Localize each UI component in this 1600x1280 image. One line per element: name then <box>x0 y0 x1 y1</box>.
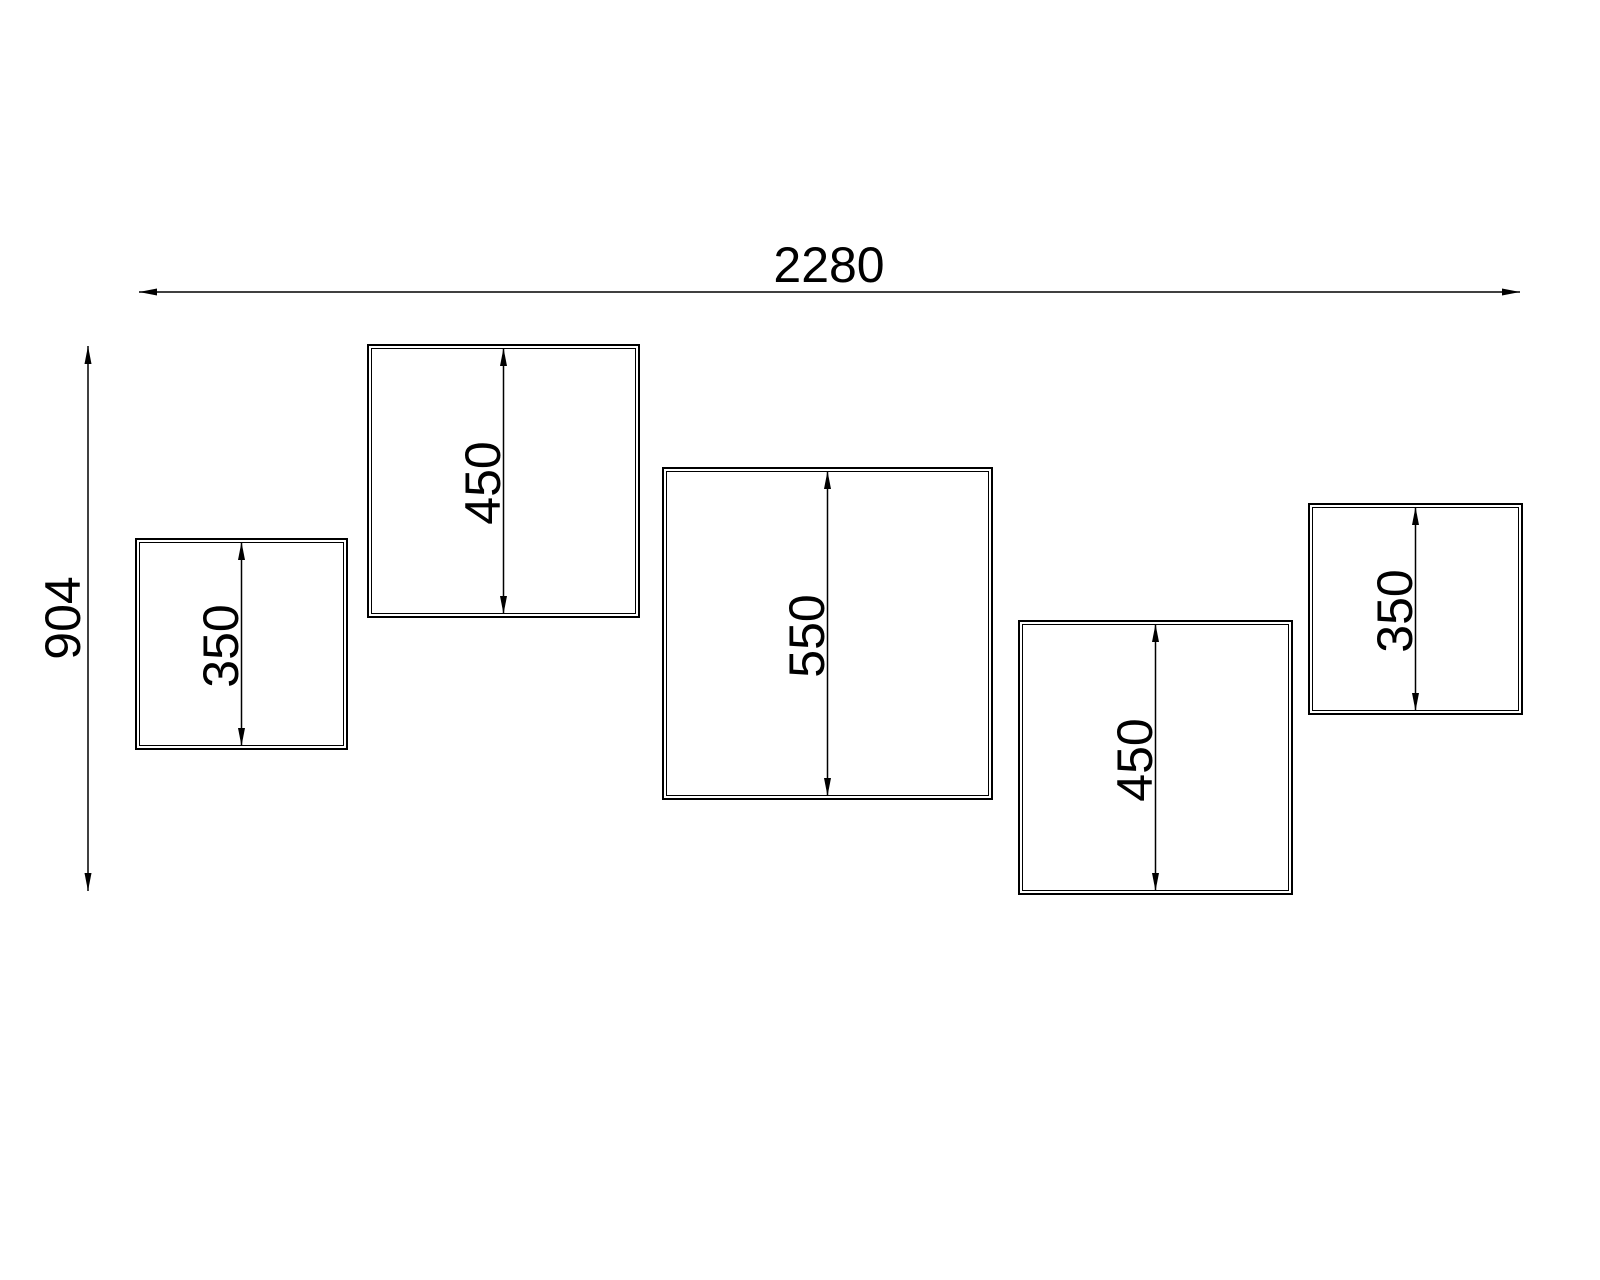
panel-dimension-label: 550 <box>782 594 832 677</box>
panel-rect: 350 <box>1308 503 1523 715</box>
panel-rect: 550 <box>662 467 993 800</box>
drawing-canvas: 350 450 550 450 350 2280 904 <box>0 0 1600 1280</box>
arrowhead-icon <box>85 873 92 891</box>
panel-dimension-label: 350 <box>1370 569 1420 652</box>
arrowhead-icon <box>1502 289 1520 296</box>
panel-rect: 450 <box>367 344 640 618</box>
panel-dimension-label: 450 <box>1110 718 1160 801</box>
panel-rect: 350 <box>135 538 348 750</box>
panel-rect: 450 <box>1018 620 1293 895</box>
overall-width-label: 2280 <box>773 240 884 290</box>
panel-dimension-label: 350 <box>196 604 246 687</box>
panel-dimension-label: 450 <box>458 441 508 524</box>
overall-height-label: 904 <box>38 576 88 659</box>
arrowhead-icon <box>139 289 157 296</box>
arrowhead-icon <box>85 346 92 364</box>
